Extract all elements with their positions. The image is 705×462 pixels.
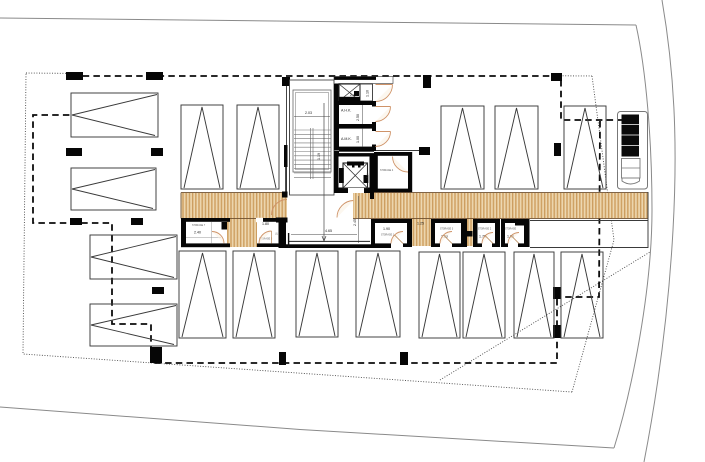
svg-text:STORAGE 1: STORAGE 1	[381, 234, 395, 237]
svg-text:1.80: 1.80	[262, 222, 269, 226]
svg-text:1.19: 1.19	[317, 153, 321, 160]
svg-text:2.50: 2.50	[356, 114, 360, 121]
svg-text:STORAGE 2: STORAGE 2	[478, 228, 492, 231]
svg-text:2.03: 2.03	[305, 111, 312, 115]
svg-text:A.M.K.: A.M.K.	[341, 137, 352, 141]
svg-text:A.H.K.: A.H.K.	[341, 109, 351, 113]
svg-text:1.90: 1.90	[383, 227, 390, 231]
svg-text:1.70: 1.70	[367, 173, 369, 178]
svg-text:4.65: 4.65	[325, 229, 332, 233]
svg-text:1.25: 1.25	[417, 222, 424, 226]
svg-text:1.00: 1.00	[356, 136, 360, 143]
svg-text:STORAGE 3: STORAGE 3	[440, 228, 454, 231]
svg-text:2.45: 2.45	[353, 219, 357, 226]
svg-text:STORAGE 4: STORAGE 4	[380, 169, 394, 172]
svg-text:2.40: 2.40	[194, 231, 201, 235]
svg-text:2.40: 2.40	[350, 93, 357, 97]
svg-text:STORAGE: STORAGE	[505, 228, 517, 231]
svg-text:1.10: 1.10	[366, 90, 370, 97]
svg-text:STORAGE 7: STORAGE 7	[192, 224, 206, 227]
